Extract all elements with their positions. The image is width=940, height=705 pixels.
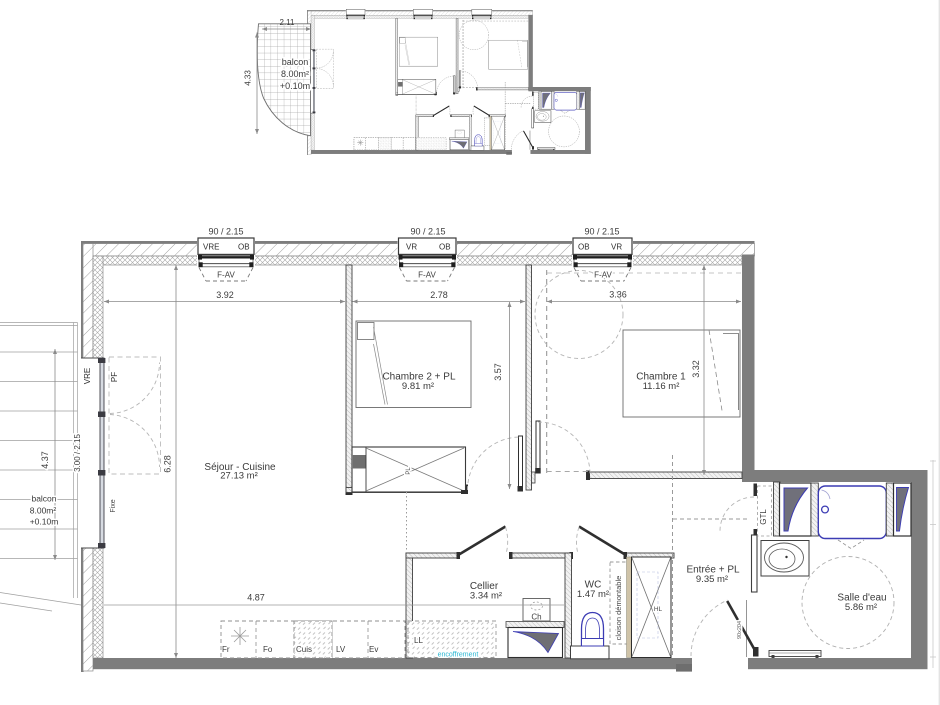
svg-text:90 / 2.15: 90 / 2.15	[584, 227, 619, 237]
svg-text:8.00m²: 8.00m²	[281, 69, 309, 79]
svg-text:9.81 m²: 9.81 m²	[402, 381, 434, 392]
svg-text:encoffrement: encoffrement	[438, 652, 479, 659]
svg-text:3.36: 3.36	[609, 290, 627, 300]
svg-text:VRE: VRE	[83, 368, 92, 384]
svg-text:F-AV: F-AV	[217, 271, 235, 280]
svg-text:9.35 m²: 9.35 m²	[696, 574, 728, 585]
svg-text:27.13 m²: 27.13 m²	[220, 471, 258, 482]
svg-text:+0.10m: +0.10m	[30, 517, 59, 527]
svg-text:GTL: GTL	[759, 509, 768, 525]
svg-text:balcon: balcon	[282, 57, 309, 67]
svg-text:LL: LL	[414, 636, 423, 645]
svg-text:balcon: balcon	[31, 494, 56, 504]
svg-text:5.86 m²: 5.86 m²	[845, 602, 877, 613]
svg-text:90 / 2.15: 90 / 2.15	[208, 227, 243, 237]
svg-text:3.34 m²: 3.34 m²	[470, 591, 502, 602]
svg-text:3.57: 3.57	[493, 363, 503, 381]
svg-text:3.32: 3.32	[691, 360, 701, 378]
svg-text:LV: LV	[336, 645, 346, 654]
svg-text:4.33: 4.33	[244, 70, 253, 86]
svg-text:VR: VR	[611, 243, 622, 252]
svg-text:PF: PF	[110, 372, 119, 382]
svg-text:VR: VR	[406, 243, 417, 252]
svg-text:4.87: 4.87	[247, 593, 265, 603]
svg-text:2.11: 2.11	[280, 18, 296, 27]
svg-text:Fo: Fo	[263, 645, 273, 654]
svg-text:VRE: VRE	[203, 243, 219, 252]
svg-text:3.92: 3.92	[216, 290, 234, 300]
svg-text:Fr: Fr	[222, 645, 230, 654]
svg-text:+0.10m: +0.10m	[280, 81, 310, 91]
svg-text:PL: PL	[406, 467, 412, 475]
svg-text:3.00 / 2.15: 3.00 / 2.15	[73, 434, 82, 472]
svg-text:OB: OB	[439, 243, 451, 252]
svg-text:Ev: Ev	[369, 645, 378, 654]
svg-text:1.47 m²: 1.47 m²	[577, 589, 609, 600]
svg-text:Fixe: Fixe	[110, 499, 117, 512]
svg-text:90x204: 90x204	[737, 621, 743, 639]
svg-text:OB: OB	[578, 243, 590, 252]
svg-text:F-AV: F-AV	[418, 271, 436, 280]
svg-text:90 / 2.15: 90 / 2.15	[410, 227, 445, 237]
svg-text:2.78: 2.78	[430, 290, 448, 300]
svg-text:Ch: Ch	[531, 613, 541, 622]
svg-text:8.00m²: 8.00m²	[30, 506, 57, 516]
svg-text:Cuis: Cuis	[296, 645, 312, 654]
svg-text:F-AV: F-AV	[594, 271, 612, 280]
svg-text:HL: HL	[654, 606, 663, 613]
svg-text:OB: OB	[238, 243, 250, 252]
svg-text:4.37: 4.37	[40, 451, 50, 469]
svg-text:6.28: 6.28	[163, 455, 173, 473]
svg-text:cloison démontable: cloison démontable	[614, 576, 623, 641]
svg-text:11.16 m²: 11.16 m²	[643, 381, 680, 392]
